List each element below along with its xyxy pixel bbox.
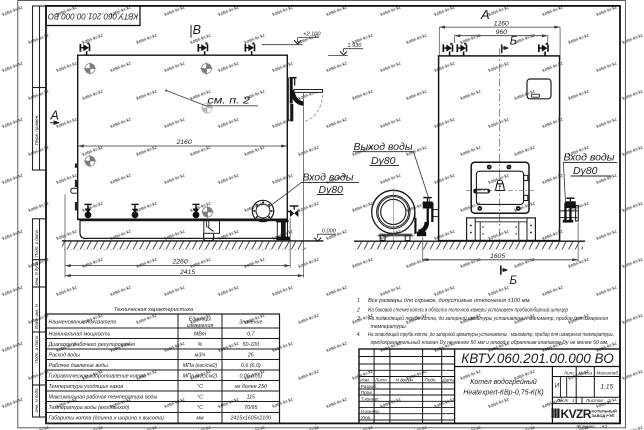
svg-text:%: % [198, 342, 203, 348]
svg-text:температуры.: температуры. [371, 324, 408, 330]
svg-text:Масштаб: Масштаб [596, 370, 618, 375]
svg-text:Рабочее давление воды: Рабочее давление воды [49, 363, 108, 369]
svg-text:На подводящей трубе котла, д: На подводящей трубе котла, до запорной а… [368, 315, 608, 322]
svg-text:1:15: 1:15 [601, 384, 614, 391]
svg-text:26: 26 [247, 352, 254, 358]
svg-text:Т.контр.: Т.контр. [361, 396, 380, 401]
svg-text:50-100: 50-100 [243, 342, 260, 348]
svg-text:Номинальная мощность: Номинальная мощность [49, 331, 111, 337]
svg-text:Пров.: Пров. [361, 390, 373, 395]
svg-text:Dy80: Dy80 [319, 184, 344, 196]
svg-text:Лист: Лист [374, 377, 387, 382]
svg-text:Разраб.: Разраб. [361, 384, 378, 389]
svg-text:70/95: 70/95 [244, 405, 257, 411]
svg-text:И: И [555, 383, 560, 390]
svg-text:Масса: Масса [578, 370, 592, 375]
svg-text:Котел водогрейный: Котел водогрейный [470, 378, 537, 386]
svg-text:0.000: 0.000 [322, 228, 337, 234]
svg-text:Расход воды: Расход воды [49, 352, 80, 358]
svg-text:1: 1 [357, 298, 360, 304]
svg-text:960: 960 [496, 29, 508, 36]
svg-text:А3: А3 [601, 424, 608, 429]
svg-text:Диапазон рабочего регулировани: Диапазон рабочего регулирования [48, 342, 136, 348]
svg-text:На боковой стенке котла в обла: На боковой стенке котла в области топочн… [368, 307, 568, 314]
svg-text:Взам. инв. N: Взам. инв. N [34, 303, 39, 329]
svg-text:Изм.: Изм. [360, 377, 370, 382]
svg-text:мм: мм [196, 416, 204, 422]
svg-text:МПа (кгс/см2): МПа (кгс/см2) [183, 373, 218, 379]
svg-text:Выход воды: Выход воды [354, 141, 413, 153]
svg-text:Подп.: Подп. [425, 377, 437, 382]
svg-text:+2.100: +2.100 [303, 31, 321, 37]
svg-text:°С: °С [197, 394, 203, 400]
svg-text:1260: 1260 [494, 20, 509, 27]
svg-text:Н.контр.: Н.контр. [361, 409, 380, 414]
svg-text:ЗАВОД РЭП: ЗАВОД РЭП [592, 413, 615, 418]
svg-text:Значение: Значение [239, 319, 262, 325]
svg-text:0,06 (0,6): 0,06 (0,6) [239, 373, 262, 379]
svg-text:°С: °С [197, 384, 203, 390]
svg-text:N докум.: N докум. [396, 377, 415, 382]
svg-text:Дата: Дата [442, 377, 456, 382]
svg-text:Инв. N дубл.: Инв. N дубл. [34, 261, 39, 286]
svg-text:Лит.: Лит. [563, 370, 575, 375]
svg-text:4.: 4. [357, 332, 361, 338]
svg-text:м3/ч: м3/ч [195, 352, 206, 358]
svg-text:Все размеры для справок, допус: Все размеры для справок, допустимые откл… [368, 298, 531, 304]
svg-text:0,7: 0,7 [247, 331, 255, 337]
svg-text:1.930: 1.930 [347, 43, 362, 49]
svg-text:Б: Б [510, 275, 518, 287]
svg-text:Вход воды: Вход воды [303, 172, 354, 184]
svg-text:Габариты котла (длинна х ширин: Габариты котла (длинна х ширина х высота… [49, 416, 165, 422]
svg-text:Наименование показателя: Наименование показателя [49, 319, 117, 325]
svg-text:Температура уходящих газов: Температура уходящих газов [49, 384, 124, 390]
svg-text:Инв. N подл.: Инв. N подл. [34, 387, 39, 412]
svg-text:МВт: МВт [194, 331, 207, 337]
svg-text:Вход воды: Вход воды [564, 151, 615, 163]
svg-text:см. п. 2: см. п. 2 [208, 95, 251, 107]
svg-text:измерения: измерения [187, 323, 214, 329]
svg-text:3: 3 [357, 316, 360, 322]
svg-text:А: А [50, 109, 59, 123]
svg-text:Dy80: Dy80 [573, 165, 598, 177]
svg-text:2: 2 [607, 398, 611, 403]
svg-text:°С: °С [197, 405, 203, 411]
svg-text:Heatexpert-КВр-0,75-К(К): Heatexpert-КВр-0,75-К(К) [463, 389, 543, 396]
svg-text:115: 115 [247, 394, 255, 400]
svg-text:Перв. примен.: Перв. примен. [34, 114, 39, 145]
svg-text:А: А [480, 7, 490, 22]
svg-text:Утв.: Утв. [361, 415, 371, 420]
svg-text:В: В [193, 23, 201, 37]
svg-text:1: 1 [572, 398, 575, 403]
svg-text:Листов: Листов [585, 398, 603, 403]
svg-text:Техническая характеристика: Техническая характеристика [114, 307, 193, 313]
svg-text:Подп. и дата: Подп. и дата [34, 335, 39, 363]
svg-text:КВТУ.060.201.00.000 ВО: КВТУ.060.201.00.000 ВО [461, 351, 614, 366]
svg-text:Dy80: Dy80 [371, 155, 396, 167]
svg-text:2: 2 [356, 308, 360, 314]
svg-text:2260: 2260 [172, 258, 188, 265]
svg-text:Подп. и дата: Подп. и дата [34, 229, 39, 257]
svg-text:2160: 2160 [176, 139, 192, 146]
svg-text:МПа (кгс/см2): МПа (кгс/см2) [183, 363, 218, 369]
svg-text:2415: 2415 [179, 269, 195, 276]
svg-text:Лист: Лист [556, 398, 569, 403]
svg-text:Формат: Формат [577, 424, 595, 429]
svg-text:На отводящей трубе котла ,до з: На отводящей трубе котла ,до запорной ар… [368, 331, 614, 338]
svg-text:Гидравлическое сопротивление к: Гидравлическое сопротивление котла [49, 373, 146, 379]
svg-text:предохранительный клапан Dy н: предохранительный клапан Dy не менее 50 … [371, 339, 609, 346]
svg-text:KVZR: KVZR [561, 407, 592, 421]
svg-text:1605: 1605 [490, 253, 505, 260]
svg-text:Единицы: Единицы [189, 317, 211, 323]
svg-text:не более 250: не более 250 [235, 384, 267, 390]
svg-text:Б: Б [510, 36, 518, 48]
svg-text:Температура воды (вход/выход): Температура воды (вход/выход) [49, 405, 130, 411]
svg-text:Максимальная рабочая температу: Максимальная рабочая температура воды [49, 394, 158, 400]
svg-text:2415х1605х2100: 2415х1605х2100 [229, 416, 271, 422]
svg-text:КВТУ.060.201.00.000 ВО: КВТУ.060.201.00.000 ВО [48, 12, 138, 21]
svg-text:0,6 (6,0): 0,6 (6,0) [241, 363, 261, 369]
